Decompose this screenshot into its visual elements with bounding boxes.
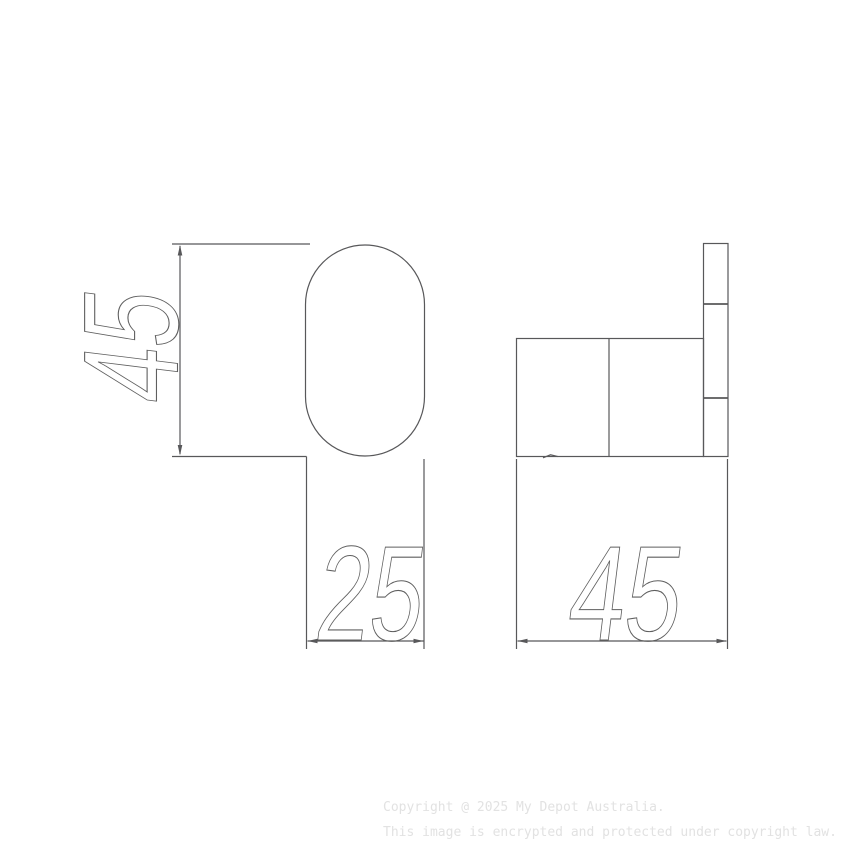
side-view-body-outline (517, 339, 704, 457)
depth-dim-label-group: 45 (561, 517, 692, 668)
technical-drawing-page: 45 25 (0, 0, 850, 850)
width-dim-label-group: 25 (309, 517, 434, 668)
height-dim-label-group: 45 (55, 281, 206, 410)
height-dim-arrow-top (178, 245, 183, 256)
watermark-line-2: This image is encrypted and protected un… (383, 825, 837, 840)
watermark: Copyright @ 2025 My Depot Australia. Thi… (383, 800, 837, 840)
height-dim-label: 45 (55, 281, 206, 410)
width-dim-label: 25 (309, 517, 434, 668)
front-view: 45 25 (55, 244, 434, 669)
depth-dim-arrow-right (717, 639, 727, 643)
depth-dim-label: 45 (561, 517, 692, 668)
front-view-capsule-outline (306, 245, 425, 456)
depth-dim-arrow-left (518, 639, 528, 643)
side-view-plate-outline (704, 244, 729, 457)
dimension-drawing: 45 25 (0, 0, 850, 850)
side-view: 45 (517, 244, 729, 669)
height-dim-arrow-bottom (178, 445, 183, 456)
watermark-line-1: Copyright @ 2025 My Depot Australia. (383, 800, 665, 815)
